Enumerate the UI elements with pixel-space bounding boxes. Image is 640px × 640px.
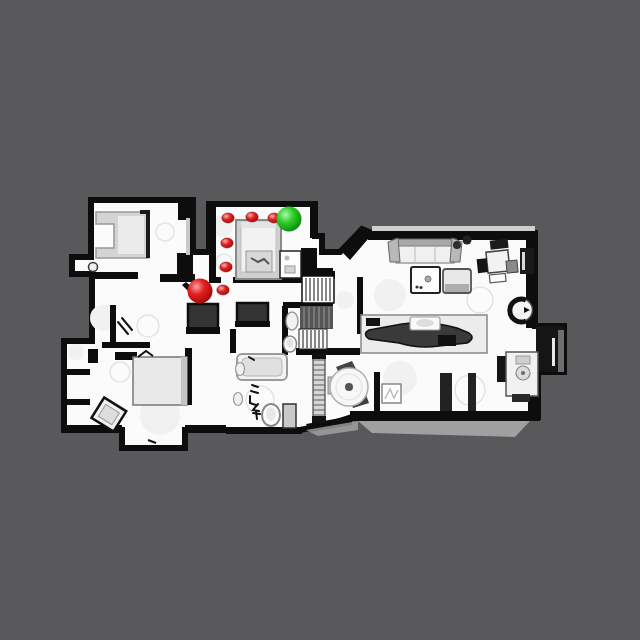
- sketch-box: [382, 384, 401, 403]
- hall-block-right: [235, 303, 270, 327]
- hall-block-left: [186, 304, 220, 334]
- armchair: [443, 269, 471, 293]
- sink: [286, 312, 298, 330]
- kitchen-island: [361, 315, 487, 353]
- path-dot: [220, 262, 232, 272]
- plant: [463, 236, 472, 245]
- path-dot: [221, 238, 233, 248]
- agent-marker: [188, 279, 213, 304]
- floorplan-map: [0, 0, 640, 640]
- wall-cabinet: [520, 248, 534, 274]
- map-viewport: [0, 0, 640, 640]
- goal-marker: [277, 207, 302, 232]
- closet-knob: [89, 263, 98, 272]
- path-dot: [222, 213, 234, 223]
- vanity-cabinet: [280, 251, 301, 278]
- sink: [234, 393, 243, 406]
- bed-bottom-left: [133, 351, 187, 405]
- sink: [236, 363, 245, 376]
- path-dot: [217, 285, 229, 295]
- round-chair: [510, 299, 533, 322]
- stair-railing: [312, 353, 326, 423]
- couch: [388, 238, 462, 263]
- path-dot: [246, 212, 258, 222]
- bed-top-middle: [236, 220, 281, 279]
- coffee-table: [411, 267, 440, 293]
